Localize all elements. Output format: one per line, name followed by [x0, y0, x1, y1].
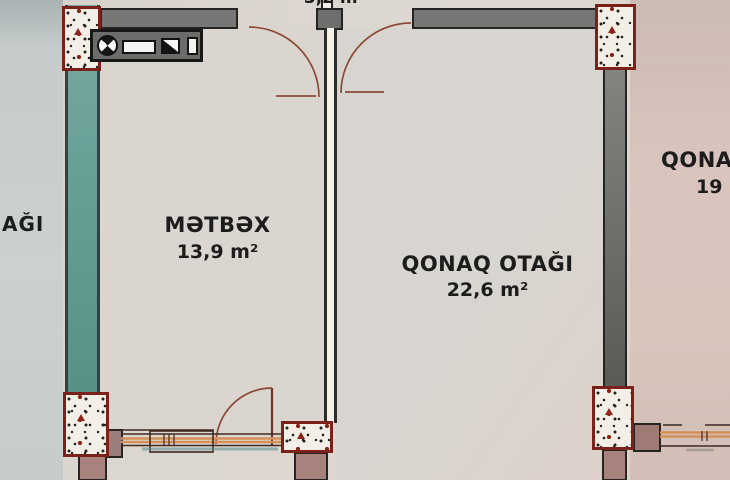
- wall-right: [603, 66, 627, 388]
- top-wall-kitchen: [100, 8, 238, 29]
- floor-plan: MƏTBƏX 13,9 m² QONAQ OTAĞI 22,6 m² QONA …: [0, 0, 730, 480]
- partition-wall-kitchen-living: [324, 28, 337, 423]
- adjacent-room-left: [0, 0, 63, 480]
- burner-dial-icon: [97, 35, 118, 56]
- adjacent-room-right: [630, 0, 730, 480]
- adjacent-left-label: AĞI: [2, 212, 44, 236]
- top-wall-living-room: [412, 8, 598, 29]
- kitchen-label: MƏTBƏX: [110, 213, 325, 237]
- living-room-label: QONAQ OTAĞI: [380, 252, 595, 276]
- partition-wall-cap: [316, 8, 343, 30]
- kitchen-area-label: 13,9 m²: [110, 241, 325, 263]
- column-bottom-right: [592, 386, 634, 450]
- adjacent-right-area-label: 19: [696, 176, 722, 198]
- column-top-right: [595, 4, 636, 70]
- hall-area-label: 3,2 m²: [297, 0, 372, 8]
- adjacent-right-label: QONA: [661, 148, 730, 172]
- column-bottom-left: [63, 392, 109, 457]
- narrow-cabinet-icon: [187, 37, 198, 55]
- half-shaded-square-icon: [161, 38, 180, 54]
- window-jamb-right: [633, 423, 661, 452]
- kitchen-window: [121, 430, 281, 452]
- balcony-wall-left: [78, 455, 107, 480]
- column-bottom-middle: [281, 421, 333, 453]
- balcony-wall-mid: [294, 452, 328, 480]
- balcony-wall-right: [602, 449, 627, 480]
- living-room-area-label: 22,6 m²: [380, 279, 595, 301]
- sink-basin-icon: [122, 40, 156, 54]
